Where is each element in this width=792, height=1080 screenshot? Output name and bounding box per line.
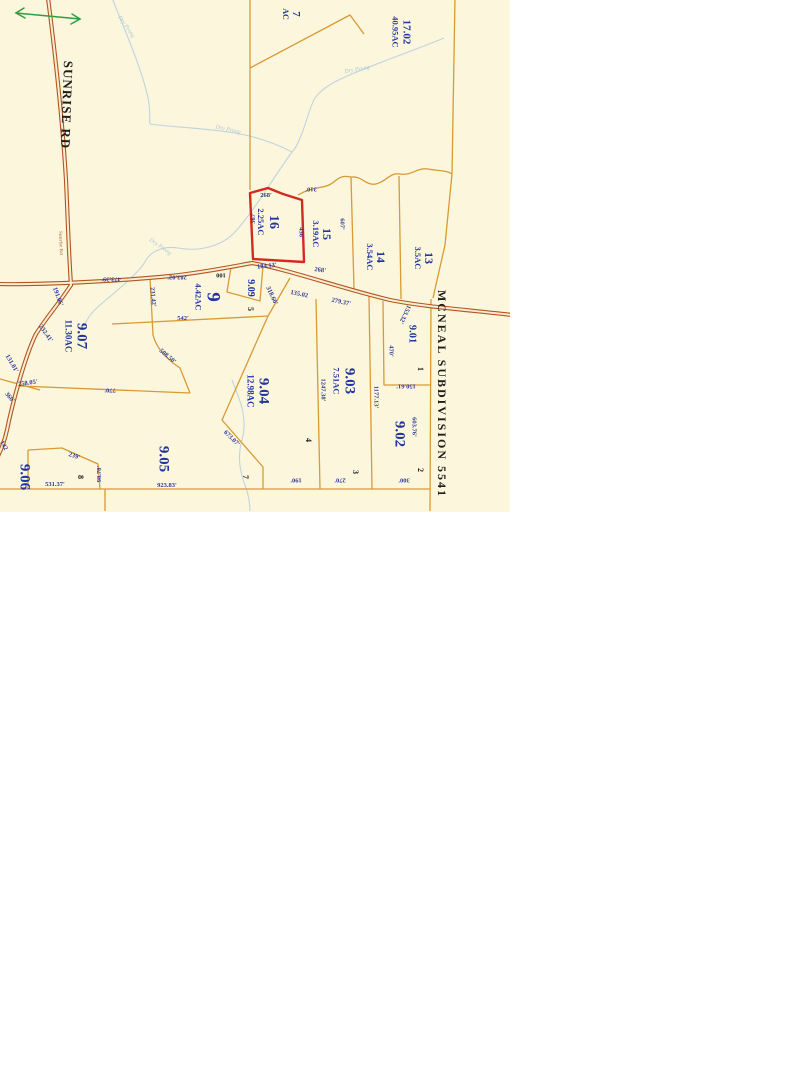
parcel-9-09-label[interactable]: 9.09 (245, 279, 255, 297)
dimension-770: 770' (104, 386, 116, 393)
dimension-258.05: 258.05' (18, 379, 38, 388)
dimension-542: 542' (177, 316, 189, 323)
parcel-17-02-acreage: 40.95AC (391, 16, 400, 47)
dimension-1247.38: 1247.38' (319, 379, 326, 402)
parcel-9-07-acreage: 11.30AC (64, 320, 73, 353)
map-labels-layer: SUNRISE RDSunrise RdMCNEAL SUBDIVISION 5… (0, 0, 510, 512)
dimension-98.78: 98.78' (97, 466, 104, 482)
dimension-436: 436' (297, 227, 304, 239)
parcel-9-05-label[interactable]: 9.05 (156, 446, 171, 472)
lot-number-2: 2 (416, 468, 424, 472)
dimension-184.13: 184.13' (257, 263, 277, 272)
dimension-673.07: 673.07' (222, 430, 241, 449)
parcel-16-acreage: 2.25AC (256, 208, 265, 235)
parcel-13-acreage: 3.5AC (413, 247, 422, 270)
dimension-607: 607' (338, 218, 345, 230)
parcel-9-number: 9 (202, 292, 223, 302)
parcel-14-acreage: 3.54AC (365, 243, 374, 270)
dimension-1177.13: 1177.13' (372, 386, 379, 409)
parcel-9-04-acreage: 12.98AC (246, 374, 255, 407)
dimension-470: 470' (387, 345, 394, 357)
dimension-270: 270' (334, 476, 346, 483)
dimension-508.50: 508.50' (157, 348, 176, 366)
lot-number-1: 1 (416, 367, 424, 371)
dimension-239: 239' (67, 452, 80, 462)
lot-number-4: 4 (304, 438, 312, 442)
parcel-9-03-acreage: 7.51AC (332, 367, 341, 394)
lot-number-3: 3 (351, 470, 359, 474)
parcel-9-02-label[interactable]: 9.02 (392, 421, 407, 447)
parcel-9-07-number: 9.07 (74, 323, 90, 349)
parcel-13-number: 13 (422, 252, 436, 264)
parcel-9-04-number: 9.04 (256, 378, 272, 404)
parcel-15-label[interactable]: 153.19AC (311, 220, 333, 247)
parcel-map[interactable]: SUNRISE RDSunrise RdMCNEAL SUBDIVISION 5… (0, 0, 510, 512)
dimension-531.37: 531.37' (45, 482, 65, 489)
creek-label-0: Dry Prong (116, 15, 136, 39)
parcel-9-06-number: 9.06 (17, 464, 33, 490)
parcel-9-05-number: 9.05 (156, 446, 172, 472)
dimension-603.76: 603.76' (410, 417, 417, 437)
parcel-9-acreage: 4.42AC (194, 283, 203, 310)
mcneal-subdivision-label: MCNEAL SUBDIVISION 5541 (436, 290, 448, 498)
parcel-7-acreage: AC (281, 8, 289, 20)
dimension-100: 100 (216, 271, 226, 278)
parcel-9-09-number: 9.09 (245, 279, 256, 297)
parcel-9-06-label[interactable]: 9.06 (17, 464, 32, 490)
parcel-9-04-label[interactable]: 9.0412.98AC (246, 374, 271, 407)
parcel-map-page: { "page": { "background": "#ffffff" }, "… (0, 0, 792, 1080)
parcel-7-number: 7 (290, 11, 302, 17)
dimension-142: 142 (0, 440, 8, 452)
lot-number-7: 7 (241, 475, 249, 479)
creek-label-2: Dry Prong (148, 237, 172, 257)
parcel-17-02-label[interactable]: 17.0240.95AC (391, 16, 412, 47)
parcel-9-03-number: 9.03 (341, 368, 357, 394)
lot-number-5: 5 (246, 307, 254, 311)
creek-label-3: Dry Prong (344, 65, 370, 75)
dimension-190: 190' (290, 476, 302, 483)
creek-label-1: Dry Prong (215, 124, 241, 135)
parcel-7-label[interactable]: 7AC (281, 8, 301, 20)
sunrise-rd-label: SUNRISE RD (59, 61, 75, 150)
dimension-232.41: 232.41' (37, 324, 54, 344)
dimension-268: 268' (260, 193, 272, 200)
dimension-135.02: 135.02 (290, 290, 309, 300)
lot-number-8: 8 (76, 475, 84, 479)
parcel-17-02-number: 17.02 (400, 20, 412, 45)
dimension-150.61: 150.61' (396, 382, 416, 389)
parcel-9-label[interactable]: 94.42AC (194, 283, 223, 310)
dimension-191.06: 191.06' (51, 287, 64, 308)
parcel-9-07-label[interactable]: 9.0711.30AC (64, 320, 89, 353)
parcel-9-01-label[interactable]: 9.01 (406, 325, 417, 343)
dimension-360: 360' (3, 391, 15, 404)
dimension-279.37: 279.37' (331, 298, 352, 308)
parcel-16-label[interactable]: 162.25AC (256, 208, 280, 235)
dimension-318.66: 318.66' (264, 286, 278, 307)
parcel-9-03-label[interactable]: 9.037.51AC (332, 367, 357, 394)
sunrise-rd-small-label: Sunrise Rd (57, 231, 63, 255)
dimension-367: 367' (251, 212, 258, 224)
dimension-131.01: 131.01' (3, 354, 18, 374)
parcel-15-number: 15 (320, 228, 334, 240)
parcel-13-label[interactable]: 133.5AC (413, 247, 435, 270)
parcel-14-number: 14 (374, 251, 388, 263)
dimension-283.02: 283.02' (167, 273, 187, 280)
parcel-16-number: 16 (266, 215, 281, 229)
dimension-268: 268' (314, 267, 326, 275)
dimension-300: 300' (398, 476, 410, 483)
parcel-9-02-number: 9.02 (392, 421, 408, 447)
dimension-231.42: 231.42' (148, 287, 156, 307)
dimension-153.32: 153.32' (397, 304, 411, 325)
parcel-15-acreage: 3.19AC (311, 220, 320, 247)
parcel-14-label[interactable]: 143.54AC (365, 243, 387, 270)
parcel-9-01-number: 9.01 (406, 325, 417, 343)
dimension-473.39: 473.39' (101, 275, 121, 282)
dimension-310: 310' (305, 185, 317, 192)
dimension-923.83: 923.83' (157, 483, 177, 490)
